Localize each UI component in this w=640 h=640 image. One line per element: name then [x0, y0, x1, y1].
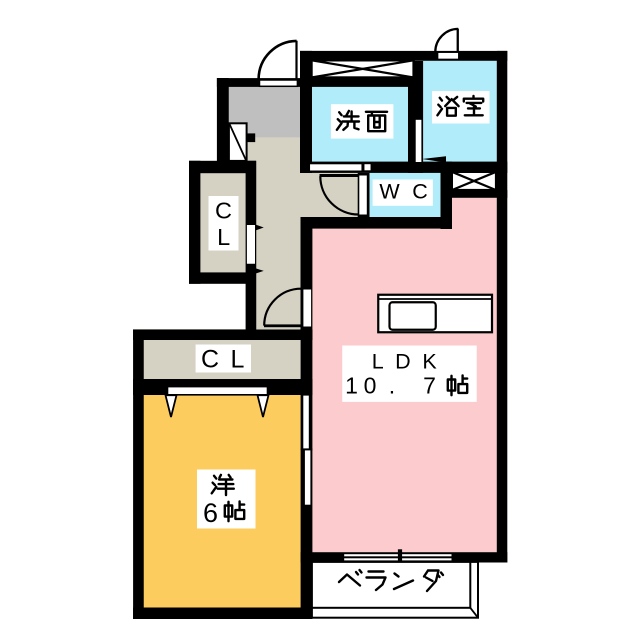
- svg-text:1: 1: [345, 373, 358, 399]
- svg-text:L: L: [372, 349, 384, 373]
- svg-text:0: 0: [364, 373, 377, 399]
- svg-text:C: C: [201, 346, 219, 374]
- svg-text:L: L: [217, 224, 230, 250]
- svg-text:6: 6: [203, 498, 218, 528]
- svg-text:D: D: [395, 349, 411, 373]
- svg-text:L: L: [230, 346, 244, 374]
- svg-text:C: C: [412, 179, 428, 203]
- svg-text:7: 7: [423, 373, 436, 399]
- svg-text:.: .: [389, 373, 395, 399]
- svg-text:W: W: [379, 179, 400, 203]
- svg-text:C: C: [215, 198, 232, 224]
- svg-text:K: K: [422, 349, 437, 373]
